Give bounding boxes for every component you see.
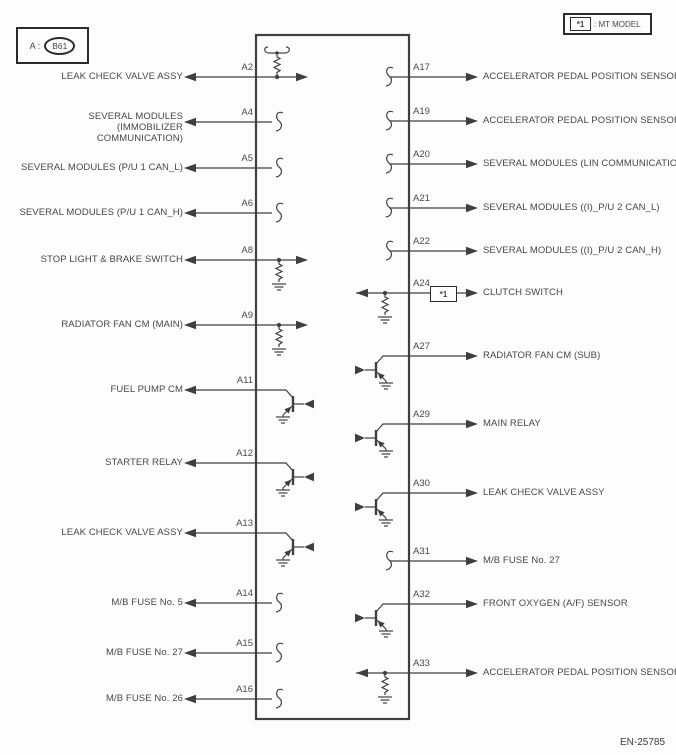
pin-number-a12: A12 (236, 448, 253, 459)
pin-label-a13: LEAK CHECK VALVE ASSY (61, 527, 183, 538)
pin-number-a15: A15 (236, 638, 253, 649)
mt-model-note: *1 : MT MODEL (563, 13, 652, 35)
pin-a13-circuit (184, 529, 314, 566)
pin-number-a27: A27 (413, 341, 430, 352)
connector-id-badge: B61 (44, 37, 75, 55)
pin-a32-circuit (355, 600, 478, 637)
pin-a12-circuit (184, 459, 314, 496)
pin-label-a24: CLUTCH SWITCH (483, 287, 563, 298)
pin-a19-circuit (386, 111, 478, 130)
pin-label-a27: RADIATOR FAN CM (SUB) (483, 350, 600, 361)
pin-number-a17: A17 (413, 62, 430, 73)
pin-label-a14: M/B FUSE No. 5 (111, 597, 183, 608)
pin-number-a21: A21 (413, 193, 430, 204)
pin-number-a14: A14 (236, 588, 253, 599)
pin-a21-circuit (386, 198, 478, 217)
document-number: EN-25785 (620, 737, 665, 748)
pin-number-a19: A19 (413, 106, 430, 117)
pin-a30-circuit (355, 489, 478, 526)
pin-a6-circuit (184, 203, 283, 222)
pin-label-a21: SEVERAL MODULES ((I)_P/U 2 CAN_L) (483, 202, 660, 213)
pin-number-a33: A33 (413, 658, 430, 669)
pin-number-a5: A5 (241, 153, 253, 164)
pin-label-a33: ACCELERATOR PEDAL POSITION SENSOR (483, 667, 676, 678)
pin-a27-circuit (355, 352, 478, 389)
pin-number-a6: A6 (241, 198, 253, 209)
pin-number-a30: A30 (413, 478, 430, 489)
pin-number-a8: A8 (241, 245, 253, 256)
pin-a33-circuit (356, 669, 478, 703)
pin-label-a30: LEAK CHECK VALVE ASSY (483, 487, 605, 498)
pin-a17-circuit (386, 67, 478, 86)
pin-label-a15: M/B FUSE No. 27 (106, 647, 183, 658)
pin-a15-circuit (184, 643, 283, 662)
pin-a11-circuit (184, 386, 314, 423)
connector-legend-prefix: A : (30, 41, 41, 51)
pin-label-a17: ACCELERATOR PEDAL POSITION SENSOR (483, 71, 676, 82)
pin-a31-circuit (386, 551, 478, 570)
pin-number-a16: A16 (236, 684, 253, 695)
pin-label-a6: SEVERAL MODULES (P/U 1 CAN_H) (19, 207, 183, 218)
pin-number-a9: A9 (241, 310, 253, 321)
pin-a20-circuit (386, 154, 478, 173)
asterisk1-marker-a24: *1 (430, 286, 457, 302)
pin-label-a9: RADIATOR FAN CM (MAIN) (61, 319, 183, 330)
pin-number-a20: A20 (413, 149, 430, 160)
pin-number-a2: A2 (241, 62, 253, 73)
pin-number-a29: A29 (413, 409, 430, 420)
pin-a24-circuit (356, 289, 478, 323)
pin-a4-circuit (184, 112, 283, 131)
pin-label-a16: M/B FUSE No. 26 (106, 693, 183, 704)
pin-a9-circuit (184, 321, 308, 355)
pin-number-a22: A22 (413, 236, 430, 247)
pin-label-a4: SEVERAL MODULES (IMMOBILIZER COMMUNICATI… (33, 111, 183, 144)
pin-number-a24: A24 (413, 278, 430, 289)
pin-a29-circuit (355, 420, 478, 457)
pin-a16-circuit (184, 689, 283, 708)
pin-label-a11: FUEL PUMP CM (111, 384, 183, 395)
pin-label-a5: SEVERAL MODULES (P/U 1 CAN_L) (21, 162, 183, 173)
pin-label-a8: STOP LIGHT & BRAKE SWITCH (41, 254, 183, 265)
pin-number-a13: A13 (236, 518, 253, 529)
pin-a8-circuit (184, 256, 308, 290)
ecm-wiring-diagram: A : B61 *1 : MT MODEL *1 LEAK CHECK VALV… (0, 0, 676, 755)
pin-number-a31: A31 (413, 546, 430, 557)
pin-label-a12: STARTER RELAY (105, 457, 183, 468)
mt-model-note-text: : MT MODEL (594, 20, 641, 29)
pin-a22-circuit (386, 241, 478, 260)
asterisk1-icon: *1 (570, 17, 591, 31)
pin-label-a31: M/B FUSE No. 27 (483, 555, 560, 566)
connector-legend: A : B61 (16, 27, 89, 64)
pin-label-a32: FRONT OXYGEN (A/F) SENSOR (483, 598, 628, 609)
pin-a14-circuit (184, 593, 283, 612)
pin-label-a29: MAIN RELAY (483, 418, 541, 429)
pin-label-a2: LEAK CHECK VALVE ASSY (61, 71, 183, 82)
ecm-connector-box (256, 35, 409, 719)
pin-number-a32: A32 (413, 589, 430, 600)
pin-a5-circuit (184, 158, 283, 177)
pin-label-a19: ACCELERATOR PEDAL POSITION SENSOR (483, 115, 676, 126)
pin-label-a22: SEVERAL MODULES ((I)_P/U 2 CAN_H) (483, 245, 661, 256)
pin-number-a11: A11 (237, 375, 253, 386)
pin-number-a4: A4 (241, 107, 253, 118)
pin-label-a20: SEVERAL MODULES (LIN COMMUNICATION) (483, 158, 676, 169)
